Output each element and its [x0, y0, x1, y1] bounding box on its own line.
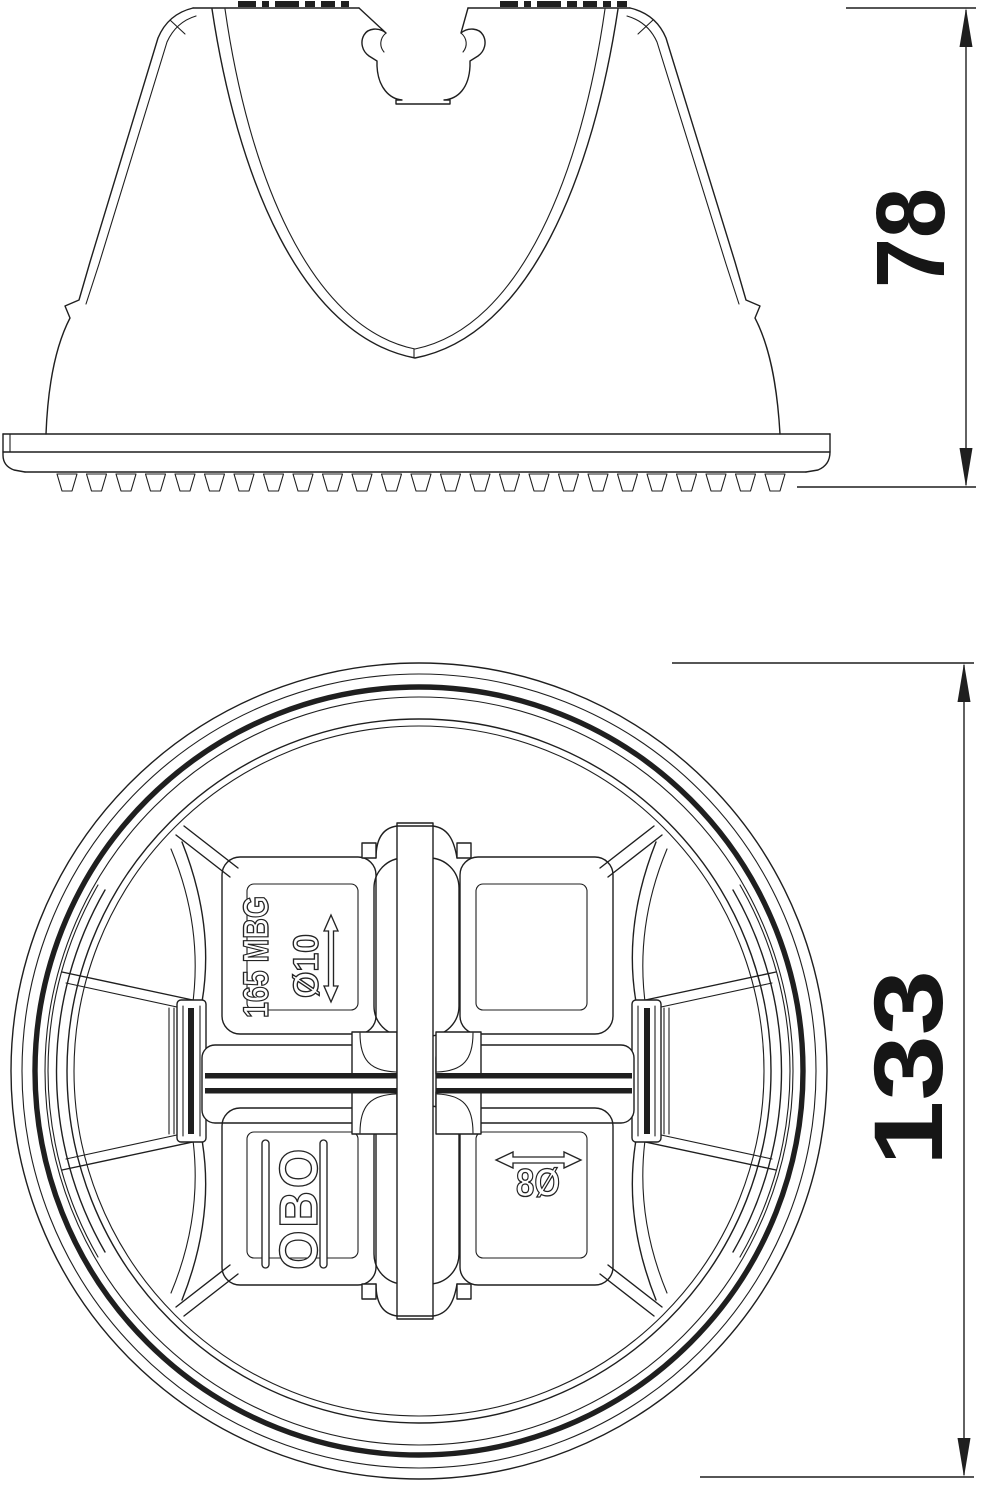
base-plate-left-cap: [3, 434, 25, 472]
collar-upper-right: [436, 1032, 481, 1074]
hatch-mark: [524, 1, 531, 7]
hatch-mark: [341, 1, 349, 7]
dia10-arrow-icon: [324, 915, 338, 1002]
base-teeth: [57, 474, 785, 491]
dim-78-label: 78: [856, 188, 965, 288]
bar-tab-top-left: [362, 843, 376, 858]
pocket-left-wing-bottom: [182, 1140, 206, 1300]
hole-dia10-label: Ø10: [287, 934, 326, 998]
clamp-hook-inner-right: [461, 33, 466, 52]
dim-arrow-down-icon: [958, 1438, 971, 1477]
hatch-mark: [583, 1, 597, 7]
hatch-mark: [262, 1, 269, 7]
pocket-right-wing-top: [632, 842, 656, 1002]
pocket-right-wing-bottom-2: [643, 1133, 667, 1293]
saddle-curve-inner: [225, 9, 605, 349]
hatch-mark: [275, 1, 299, 7]
bar-tab-top-right: [457, 843, 471, 858]
clamp-slot-outline: [359, 8, 485, 104]
pocket-left-wing-top-2: [171, 849, 195, 1009]
hatch-mark: [617, 1, 627, 7]
side-view: 78: [3, 1, 976, 491]
saddle-curve-outer: [212, 9, 618, 358]
tooth: [57, 474, 785, 491]
top-serration-hatch: [238, 1, 627, 7]
obo-brand-label: OBO: [269, 1146, 329, 1270]
hatch-mark: [500, 1, 518, 7]
hatch-mark: [321, 1, 335, 7]
wall-right-inner: [627, 16, 739, 304]
clamp-conductor-right: [644, 1008, 650, 1134]
conductor-right-top: [436, 1073, 632, 1079]
pocket-left-wing-top: [182, 842, 206, 1002]
base-plate-right-cap: [806, 434, 830, 472]
pocket-right-wing-top-2: [643, 849, 667, 1009]
bar-tab-bottom-right: [457, 1284, 471, 1299]
conductor-left-bottom: [205, 1088, 397, 1094]
hatch-mark: [603, 1, 611, 7]
collar-lower-left: [352, 1092, 397, 1134]
dim-133-label: 133: [854, 970, 963, 1166]
bar-tab-bottom-left: [362, 1284, 376, 1299]
clamp-hook-inner-left: [381, 33, 386, 52]
pocket-left-wing-bottom-2: [171, 1133, 195, 1293]
wall-right-outer: [630, 8, 780, 434]
hatch-mark: [238, 1, 256, 7]
hole-dia8-label: 8Ø: [516, 1162, 560, 1205]
dim-arrow-down-icon: [960, 448, 973, 487]
conductor-right-bottom: [436, 1088, 632, 1094]
collar-lower-right: [436, 1092, 481, 1134]
dim-height: 78: [797, 8, 976, 487]
pocket-right-wing-bottom: [632, 1140, 656, 1300]
clamp-conductor-left: [188, 1008, 194, 1134]
plan-view: 165 MBG Ø10 OBO 8Ø 133: [11, 663, 974, 1479]
hatch-mark: [567, 1, 577, 7]
obo-logo: OBO: [262, 1140, 329, 1270]
technical-drawing: 78: [0, 0, 985, 1500]
collar-upper-left: [352, 1032, 397, 1074]
conductor-left-top: [205, 1073, 397, 1079]
dim-diameter: 133: [672, 663, 974, 1477]
wall-left-inner: [86, 16, 196, 304]
hatch-mark: [537, 1, 561, 7]
obo-logo-rule-left: [262, 1140, 269, 1268]
panel-upper-right-recess: [476, 884, 587, 1010]
hatch-mark: [305, 1, 315, 7]
center-bar: [397, 823, 433, 1319]
type-label: 165 MBG: [237, 896, 276, 1018]
dim-arrow-up-icon: [960, 8, 973, 47]
dim-arrow-up-icon: [958, 663, 971, 702]
wall-left-outer: [46, 8, 193, 434]
